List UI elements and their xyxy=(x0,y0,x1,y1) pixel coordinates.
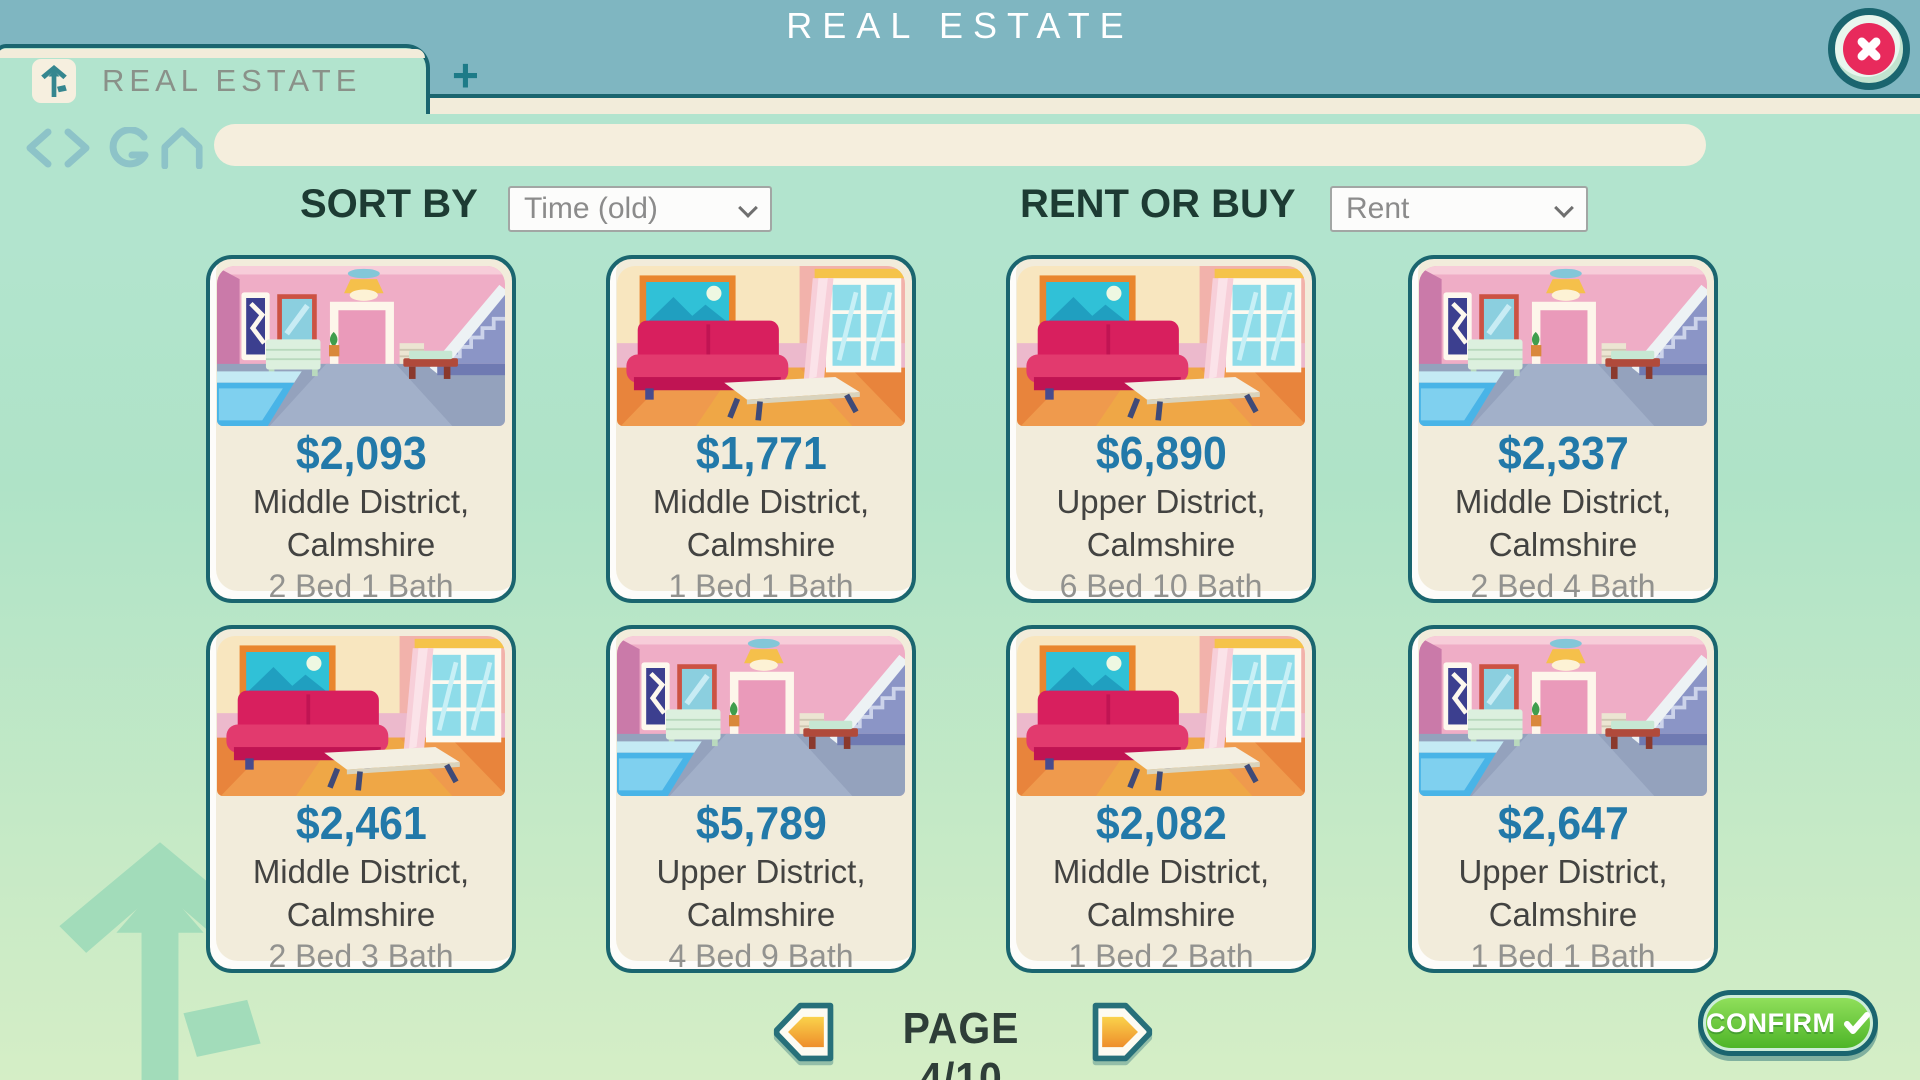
rent-or-buy-label: RENT OR BUY xyxy=(1020,182,1296,227)
url-input[interactable] xyxy=(214,124,1706,166)
listing-card[interactable]: $5,789 Upper District, Calmshire 4 Bed 9… xyxy=(606,625,916,973)
tab-label: REAL ESTATE xyxy=(102,63,361,99)
listing-beds-baths: 1 Bed 2 Bath xyxy=(1010,936,1312,976)
listing-location: Middle District, xyxy=(210,850,512,893)
sort-by-dropdown[interactable]: Time (old) xyxy=(508,186,772,232)
close-icon xyxy=(1843,23,1895,75)
listing-city: Calmshire xyxy=(1412,893,1714,936)
window-top-edge xyxy=(424,94,1920,114)
listing-card[interactable]: $2,647 Upper District, Calmshire 1 Bed 1… xyxy=(1408,625,1718,973)
room-sofa-illustration xyxy=(617,266,905,426)
listing-city: Calmshire xyxy=(1010,523,1312,566)
house-arrow-logo-icon xyxy=(32,59,76,103)
room-stairs-pool-illustration xyxy=(617,636,905,796)
tab-real-estate[interactable]: REAL ESTATE xyxy=(0,44,430,114)
home-button[interactable] xyxy=(160,125,204,174)
next-page-button[interactable] xyxy=(1088,998,1154,1066)
listing-location: Middle District, xyxy=(1412,480,1714,523)
new-tab-button[interactable]: + xyxy=(452,52,479,98)
arrow-left-icon xyxy=(772,998,838,1066)
chevron-down-icon xyxy=(1554,198,1574,218)
listing-card[interactable]: $2,337 Middle District, Calmshire 2 Bed … xyxy=(1408,255,1718,603)
arrow-right-icon xyxy=(1088,998,1154,1066)
back-button[interactable] xyxy=(24,128,54,173)
listing-city: Calmshire xyxy=(610,523,912,566)
listing-price: $2,093 xyxy=(296,426,427,480)
listing-city: Calmshire xyxy=(610,893,912,936)
listing-city: Calmshire xyxy=(210,893,512,936)
listing-location: Middle District, xyxy=(610,480,912,523)
sort-by-label: SORT BY xyxy=(300,182,478,227)
close-button[interactable] xyxy=(1828,8,1910,90)
pagination-label: PAGE 4/10 xyxy=(861,1004,1061,1080)
listing-beds-baths: 1 Bed 1 Bath xyxy=(610,566,912,606)
room-sofa-illustration xyxy=(217,636,505,796)
listing-beds-baths: 6 Bed 10 Bath xyxy=(1010,566,1312,606)
listing-price: $1,771 xyxy=(696,426,827,480)
listing-price: $2,337 xyxy=(1498,426,1629,480)
confirm-button[interactable]: CONFIRM xyxy=(1698,990,1878,1056)
room-stairs-pool-illustration xyxy=(1419,266,1707,426)
forward-button[interactable] xyxy=(62,128,92,173)
page-title: REAL ESTATE xyxy=(0,0,1920,48)
room-stairs-pool-illustration xyxy=(1419,636,1707,796)
listing-location: Middle District, xyxy=(210,480,512,523)
listing-card[interactable]: $2,461 Middle District, Calmshire 2 Bed … xyxy=(206,625,516,973)
listing-beds-baths: 4 Bed 9 Bath xyxy=(610,936,912,976)
listing-location: Upper District, xyxy=(610,850,912,893)
listing-price: $5,789 xyxy=(696,796,827,850)
sort-by-value: Time (old) xyxy=(524,192,658,226)
listing-card[interactable]: $2,093 Middle District, Calmshire 2 Bed … xyxy=(206,255,516,603)
real-estate-screen: REAL ESTATE REAL ESTATE + SORT BY Time (… xyxy=(0,0,1920,1080)
confirm-label: CONFIRM xyxy=(1706,1008,1835,1039)
room-stairs-pool-illustration xyxy=(217,266,505,426)
rent-or-buy-value: Rent xyxy=(1346,192,1409,226)
listing-price: $2,647 xyxy=(1498,796,1629,850)
listing-beds-baths: 1 Bed 1 Bath xyxy=(1412,936,1714,976)
listing-location: Upper District, xyxy=(1412,850,1714,893)
room-sofa-illustration xyxy=(1017,636,1305,796)
refresh-button[interactable] xyxy=(106,127,150,174)
rent-or-buy-dropdown[interactable]: Rent xyxy=(1330,186,1588,232)
listing-location: Upper District, xyxy=(1010,480,1312,523)
listing-city: Calmshire xyxy=(1010,893,1312,936)
listing-beds-baths: 2 Bed 1 Bath xyxy=(210,566,512,606)
listing-city: Calmshire xyxy=(1412,523,1714,566)
listing-beds-baths: 2 Bed 3 Bath xyxy=(210,936,512,976)
listing-beds-baths: 2 Bed 4 Bath xyxy=(1412,566,1714,606)
listing-price: $2,082 xyxy=(1096,796,1227,850)
checkmark-icon xyxy=(1844,1012,1870,1034)
room-sofa-illustration xyxy=(1017,266,1305,426)
listing-card[interactable]: $6,890 Upper District, Calmshire 6 Bed 1… xyxy=(1006,255,1316,603)
listing-price: $2,461 xyxy=(296,796,427,850)
listing-card[interactable]: $1,771 Middle District, Calmshire 1 Bed … xyxy=(606,255,916,603)
chevron-down-icon xyxy=(738,198,758,218)
listing-location: Middle District, xyxy=(1010,850,1312,893)
listing-card[interactable]: $2,082 Middle District, Calmshire 1 Bed … xyxy=(1006,625,1316,973)
prev-page-button[interactable] xyxy=(772,998,838,1066)
listing-price: $6,890 xyxy=(1096,426,1227,480)
listing-city: Calmshire xyxy=(210,523,512,566)
